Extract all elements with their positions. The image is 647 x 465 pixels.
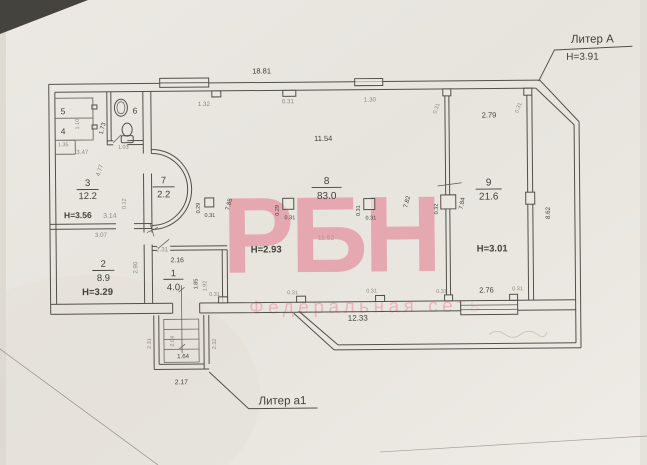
dim-col2-width: 0.29 (275, 205, 281, 216)
pier-bottom-2 (297, 296, 306, 302)
pier-room9-left (443, 89, 451, 96)
dim-window-right: 1.30 (364, 97, 377, 104)
dim-r9-width-top: 2.79 (482, 110, 497, 119)
dim-cell-side: 1.10 (75, 119, 81, 130)
window-top-right (355, 78, 383, 85)
dim-r1-depth: 1.85 (193, 279, 199, 290)
dim-window-left: 1.32 (198, 101, 211, 108)
pier-top-2 (283, 90, 296, 96)
column-1 (205, 198, 214, 207)
dim-top-wall: 18.81 (252, 66, 271, 75)
dim-pier-b5: 0.31 (512, 286, 523, 292)
dim-porch-left: 2.31 (147, 338, 153, 349)
cell-door-tick-2 (92, 125, 97, 129)
dim-pier-b1: 0.31 (209, 292, 220, 298)
dim-col1-depth: 0.31 (204, 213, 215, 219)
dim-r9-width-bottom: 2.76 (479, 285, 494, 294)
room8-number: 8 (324, 176, 330, 187)
dim-pier-b4: 0.31 (436, 289, 447, 295)
dim-r1-side: 1.92 (202, 281, 208, 292)
dim-hall-width-bottom: 11.52 (318, 235, 335, 242)
pier-bottom-5 (510, 294, 518, 300)
dim-pier-b3: 0.31 (366, 289, 377, 295)
room3-number: 3 (85, 178, 90, 189)
dim-col3-width: 0.31 (356, 205, 362, 216)
scanned-floor-plan: РБН Федеральная сеть (0, 0, 647, 465)
room1-area: 4.0 (167, 282, 180, 293)
liter-a1-label: Литер а1 (258, 395, 306, 407)
column-wall89 (441, 195, 456, 209)
dim-porch-width: 2.17 (175, 379, 189, 386)
room7-number: 7 (161, 175, 166, 186)
dim-pier-b2: 0.31 (287, 290, 298, 296)
room5-number: 5 (61, 106, 66, 116)
dim-r2-width: 3.07 (95, 232, 108, 239)
pier-top-1 (212, 91, 221, 97)
dim-bath-door: 1.03 (118, 145, 129, 151)
pier-bottom-4 (445, 295, 453, 301)
dim-porch-right: 2.32 (212, 339, 218, 350)
dim-porch-step: 1.64 (177, 353, 190, 360)
dim-r2-depth: 2.90 (132, 261, 139, 274)
dim-right-side: 8.62 (545, 206, 552, 219)
dim-hall-width-top: 11.54 (314, 134, 332, 143)
pier-room9-right (524, 88, 532, 95)
dim-bottom-wall: 12.33 (348, 314, 369, 323)
dim-r3-extra: 3.14 (103, 213, 117, 220)
dim-col2-depth: 0.31 (285, 215, 296, 221)
room2-height: H=3.29 (82, 287, 113, 298)
paper-edge-right (640, 0, 647, 465)
dim-porch-inner: 2.04 (170, 336, 176, 347)
column-3 (364, 199, 375, 210)
dim-col3-depth: 0.31 (366, 216, 377, 222)
dim-arc: 0.12 (122, 198, 128, 209)
room8-area: 83.0 (317, 191, 337, 202)
dim-r1-top: 2.31 (156, 246, 169, 253)
room3-height: H=3.56 (64, 210, 92, 220)
window-room9 (461, 300, 518, 314)
column-2 (283, 198, 294, 209)
room1-number: 1 (171, 268, 176, 279)
room4-number: 4 (61, 126, 66, 136)
room8-height: H=2.93 (251, 244, 282, 255)
room9-area: 21.6 (479, 191, 499, 202)
pier-bottom-3 (376, 295, 385, 301)
dim-cell-bottom: 1.35 (58, 142, 69, 148)
room7-area: 2.2 (157, 189, 170, 200)
dim-pier-top: 0.31 (282, 98, 295, 105)
room9-number: 9 (486, 177, 492, 188)
cell-door-tick-1 (92, 105, 97, 109)
room6-number: 6 (133, 106, 138, 116)
dim-wall89-column: 0.32 (434, 204, 440, 215)
pier-room9-sidewall (526, 192, 535, 204)
dim-r3-width: 3.47 (76, 149, 89, 156)
room2-number: 2 (101, 259, 106, 270)
liter-a-height: H=3.91 (566, 52, 599, 63)
room2-area: 8.9 (97, 273, 110, 284)
liter-a-label: Литер А (571, 33, 614, 45)
room3-area: 12.2 (78, 191, 97, 202)
dim-col1-width: 0.29 (196, 203, 202, 214)
room9-height: H=3.01 (477, 243, 509, 254)
floor-plan-svg: РБН Федеральная сеть (0, 0, 647, 465)
dim-r1-width: 2.16 (171, 257, 185, 264)
